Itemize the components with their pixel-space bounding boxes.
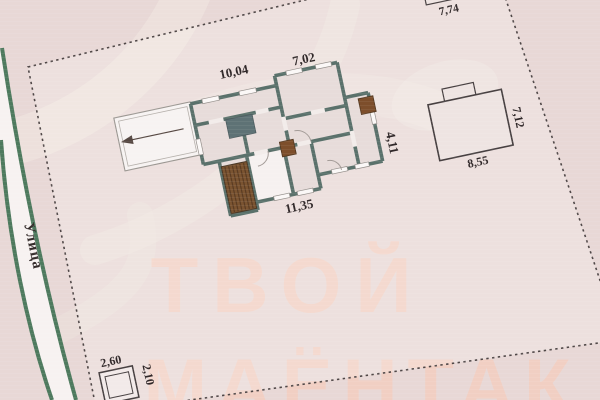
stove — [279, 139, 296, 157]
site-plan: ТВОЙ МАЁНТАК Улица — [0, 0, 600, 400]
furnace — [358, 96, 376, 115]
well-outer — [99, 366, 139, 400]
